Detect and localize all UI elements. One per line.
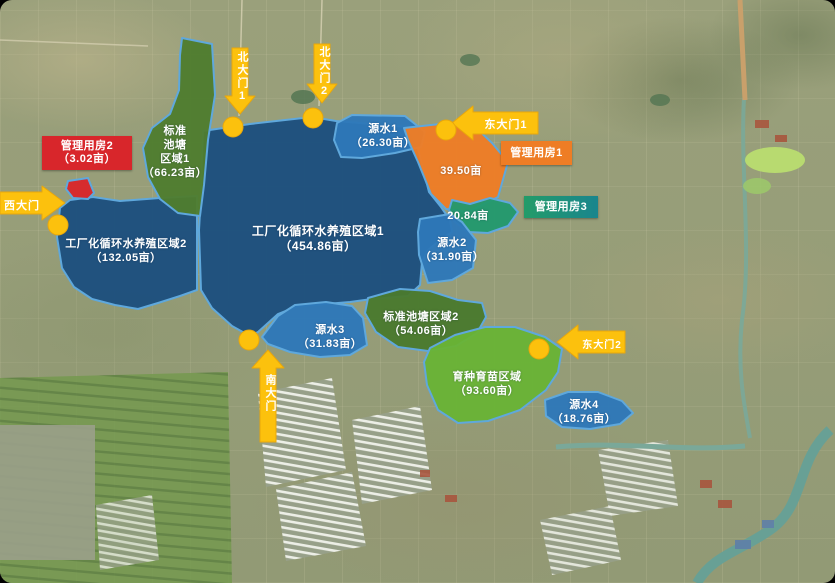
pond [460,54,480,66]
grey-field-patch [0,425,95,560]
west-gate-dot [48,215,68,235]
river [697,430,830,583]
north-gate-1-arrow [225,48,255,114]
pond [291,90,315,104]
greenhouse-block [276,472,366,561]
region-pond1 [143,38,215,216]
pond [650,94,670,106]
north-gate-2-dot [303,108,323,128]
map-overlay-svg [0,0,835,583]
water-channel [740,98,750,438]
aquaculture-planning-map: 工厂化循环水养殖区域1 （454.86亩） 工厂化循环水养殖区域2 （132.0… [0,0,835,583]
east-gate-2-arrow [557,325,625,359]
north-gate-1-dot [223,117,243,137]
greenhouse-block [540,506,621,575]
dirt-road [740,0,745,100]
greenhouse-block [352,406,432,504]
south-gate-dot [239,330,259,350]
east-gate-1-dot [436,120,456,140]
water-channel [556,445,745,448]
region-source4 [545,392,633,429]
road [0,40,148,46]
region-area2 [57,196,197,309]
east-gate-2-dot [529,339,549,359]
zone-polygons [57,38,633,429]
greenhouse-block [96,495,159,570]
pond [745,147,805,173]
region-red-plot [66,178,94,199]
greenhouse-block [598,440,678,516]
pond [743,178,771,194]
